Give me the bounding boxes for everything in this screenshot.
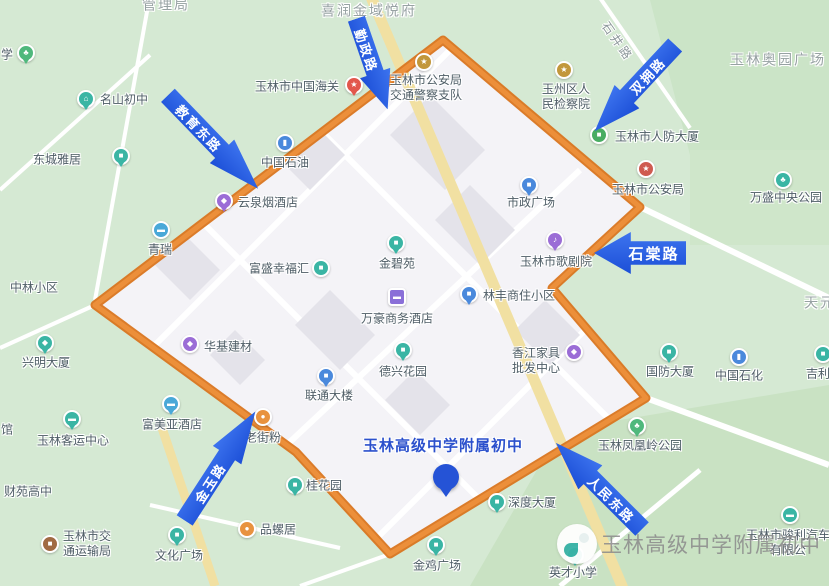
building-pin-icon: ■ [387, 234, 405, 252]
bus-pin-icon: ▬ [63, 410, 81, 428]
poi-label: 中林小区 [10, 281, 58, 296]
poi-label: 玉林市公安局交通警察支队 [390, 73, 462, 103]
watermark-text: 玉林高级中学附属初中 [601, 529, 821, 559]
poi-label: 中国石化 [715, 369, 763, 384]
building-dot-icon: ■ [590, 126, 608, 144]
poi-label: 玉林市公安局 [612, 183, 684, 198]
poi-label: 名山初中 [100, 93, 148, 108]
district-name-label: 玉林高级中学附属初中 [363, 435, 523, 456]
gov-dot-icon: ■ [41, 535, 59, 553]
shop-bag-dot-icon: ◆ [565, 343, 583, 361]
building-pin-icon: ■ [460, 285, 478, 303]
poi-label: 云泉烟酒店 [238, 196, 298, 211]
building-pin-icon: ■ [168, 526, 186, 544]
logo-wing-shape [564, 543, 578, 557]
poi-label: 老街粉 [245, 431, 281, 446]
map-canvas[interactable]: 管理局喜润金域悦府玉林奥园广场天元石井路学♣名山初中⌂东城雅居■玉林市中国海关★… [0, 0, 829, 586]
building-pin-icon: ■ [317, 367, 335, 385]
poi-label: 财苑高中 [4, 485, 52, 500]
building-dot-icon: ■ [312, 259, 330, 277]
poi-label: 中国石油 [261, 156, 309, 171]
poi-label: 玉林市歌剧院 [520, 255, 592, 270]
poi-label: 青瑞 [148, 243, 172, 258]
district-location-pin[interactable] [433, 464, 459, 490]
police-badge-icon: ★ [637, 160, 655, 178]
park-dot-icon: ♣ [774, 171, 792, 189]
poi-layer: 管理局喜润金域悦府玉林奥园广场天元石井路学♣名山初中⌂东城雅居■玉林市中国海关★… [0, 0, 829, 586]
poi-label: 喜润金域悦府 [321, 2, 417, 20]
building-pin-icon: ■ [427, 536, 445, 554]
poi-label: 玉林市交通运输局 [63, 529, 111, 559]
logo-head-shape [579, 533, 589, 543]
poi-label: 金碧苑 [379, 257, 415, 272]
shop-bag-pin-icon: ◆ [215, 192, 233, 210]
briefcase-pin-icon: ◆ [36, 334, 54, 352]
poi-label: 德兴花园 [379, 365, 427, 380]
school-logo-icon [557, 524, 597, 564]
poi-label: 桂花园 [306, 479, 342, 494]
poi-label: 金鸡广场 [413, 559, 461, 574]
school-pin-icon: ⌂ [77, 90, 95, 108]
poi-label: 天元 [804, 294, 829, 312]
car-dot-icon: ▬ [781, 506, 799, 524]
building-pin-icon: ■ [488, 493, 506, 511]
poi-label: 馆 [1, 423, 13, 438]
building-pin-icon: ■ [112, 147, 130, 165]
poi-label: 学 [1, 48, 13, 63]
poi-label: 玉州区人民检察院 [542, 82, 590, 112]
poi-label: 万豪商务酒店 [361, 312, 433, 327]
poi-label: 东城雅居 [33, 153, 81, 168]
poi-label: 品螺居 [260, 523, 296, 538]
poi-label: 玉林市中国海关 [255, 80, 339, 95]
hotel-bed-icon: ▬ [388, 288, 406, 306]
poi-label: 香江家具批发中心 [512, 346, 560, 376]
poi-label: 文化广场 [155, 549, 203, 564]
building-pin-icon: ■ [660, 343, 678, 361]
building-pin-icon: ■ [520, 176, 538, 194]
poi-label: 万盛中央公园 [750, 191, 822, 206]
tree-pin-icon: ♣ [17, 44, 35, 62]
building-pin-icon: ■ [286, 476, 304, 494]
hotel-bed-pin-icon: ▬ [162, 395, 180, 413]
poi-label: 华基建材 [204, 340, 252, 355]
poi-label: 吉利 [806, 367, 829, 382]
watermark: 玉林高级中学附属初中 [557, 524, 821, 564]
food-dot-icon: ● [238, 520, 256, 538]
car-dot-icon: ▬ [152, 221, 170, 239]
building-dot-icon: ■ [814, 345, 829, 363]
poi-label: 富美亚酒店 [142, 418, 202, 433]
poi-label: 玉林客运中心 [37, 434, 109, 449]
poi-label: 富盛幸福汇 [249, 262, 309, 277]
poi-label: 玉林奥园广场 [730, 51, 826, 69]
poi-label: 管理局 [142, 0, 190, 14]
poi-label: 林丰商住小区 [483, 289, 555, 304]
fuel-dot-icon: ▮ [276, 134, 294, 152]
fuel-dot-icon: ▮ [730, 348, 748, 366]
star-pin-icon: ★ [345, 76, 363, 94]
shop-bag-dot-icon: ◆ [181, 335, 199, 353]
food-dot-icon: ● [254, 408, 272, 426]
poi-label: 玉林市人防大厦 [615, 130, 699, 145]
poi-label: 石井路 [598, 19, 636, 64]
gov-badge-icon: ★ [555, 61, 573, 79]
building-pin-icon: ■ [394, 341, 412, 359]
tree-pin-icon: ♣ [628, 417, 646, 435]
theater-pin-icon: ♪ [546, 231, 564, 249]
police-badge-icon: ★ [415, 53, 433, 71]
poi-label: 深度大厦 [508, 496, 556, 511]
